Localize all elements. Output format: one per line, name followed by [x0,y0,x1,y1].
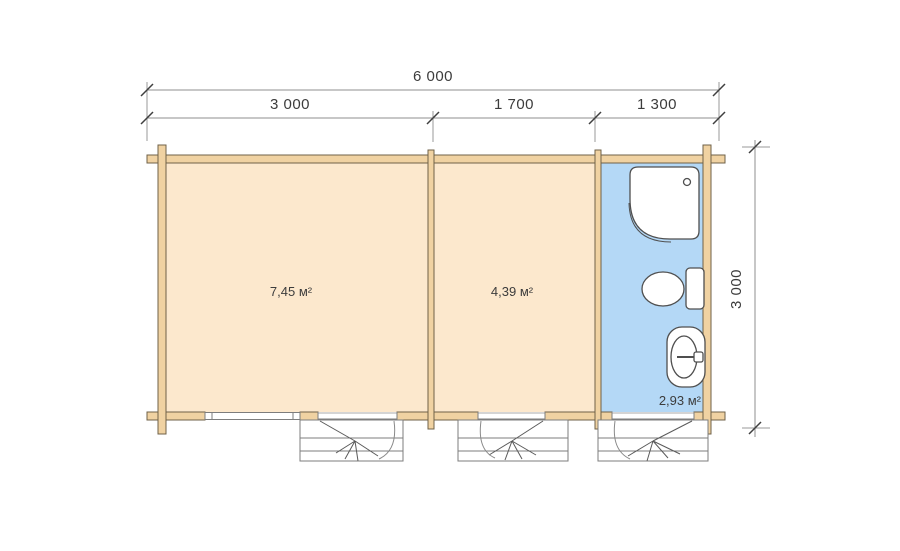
wall-bottom-seg-3 [397,412,478,420]
toilet-icon [642,268,704,309]
entrance-door-1 [300,420,403,461]
door-opening-2 [478,412,545,420]
wall-partition-2 [595,150,601,429]
entrance-door-2 [458,420,568,461]
washbasin-icon [667,327,705,387]
entrance-door-3 [598,420,708,461]
door-opening-1 [318,412,397,420]
wall-partition-1 [428,150,434,429]
wall-bottom-seg-2 [300,412,318,420]
bathroom-area-label: 2,93 м² [659,393,702,408]
wall-bottom-seg-1 [147,412,205,420]
dimension-label-depth-3000: 3 000 [728,269,745,309]
wall-bottom-seg-4 [545,412,612,420]
dimension-label-6000: 6 000 [413,68,453,85]
faucet-icon [694,352,703,362]
dimension-label-1700: 1 700 [494,96,534,113]
wall-top [147,155,725,163]
floor-plan: 7,45 м² 4,39 м² 2,93 м² 6 000 3 000 1 70… [0,0,900,551]
dimension-label-3000: 3 000 [270,96,310,113]
dimension-label-1300: 1 300 [637,96,677,113]
window [205,412,300,420]
shower-drain-icon [684,179,691,186]
wall-left [158,145,166,434]
room-2-area-label: 4,39 м² [491,284,534,299]
door-opening-3 [612,412,694,420]
floor-plan-drawing: 7,45 м² 4,39 м² 2,93 м² 6 000 3 000 1 70… [0,0,900,551]
room-1-area-label: 7,45 м² [270,284,313,299]
